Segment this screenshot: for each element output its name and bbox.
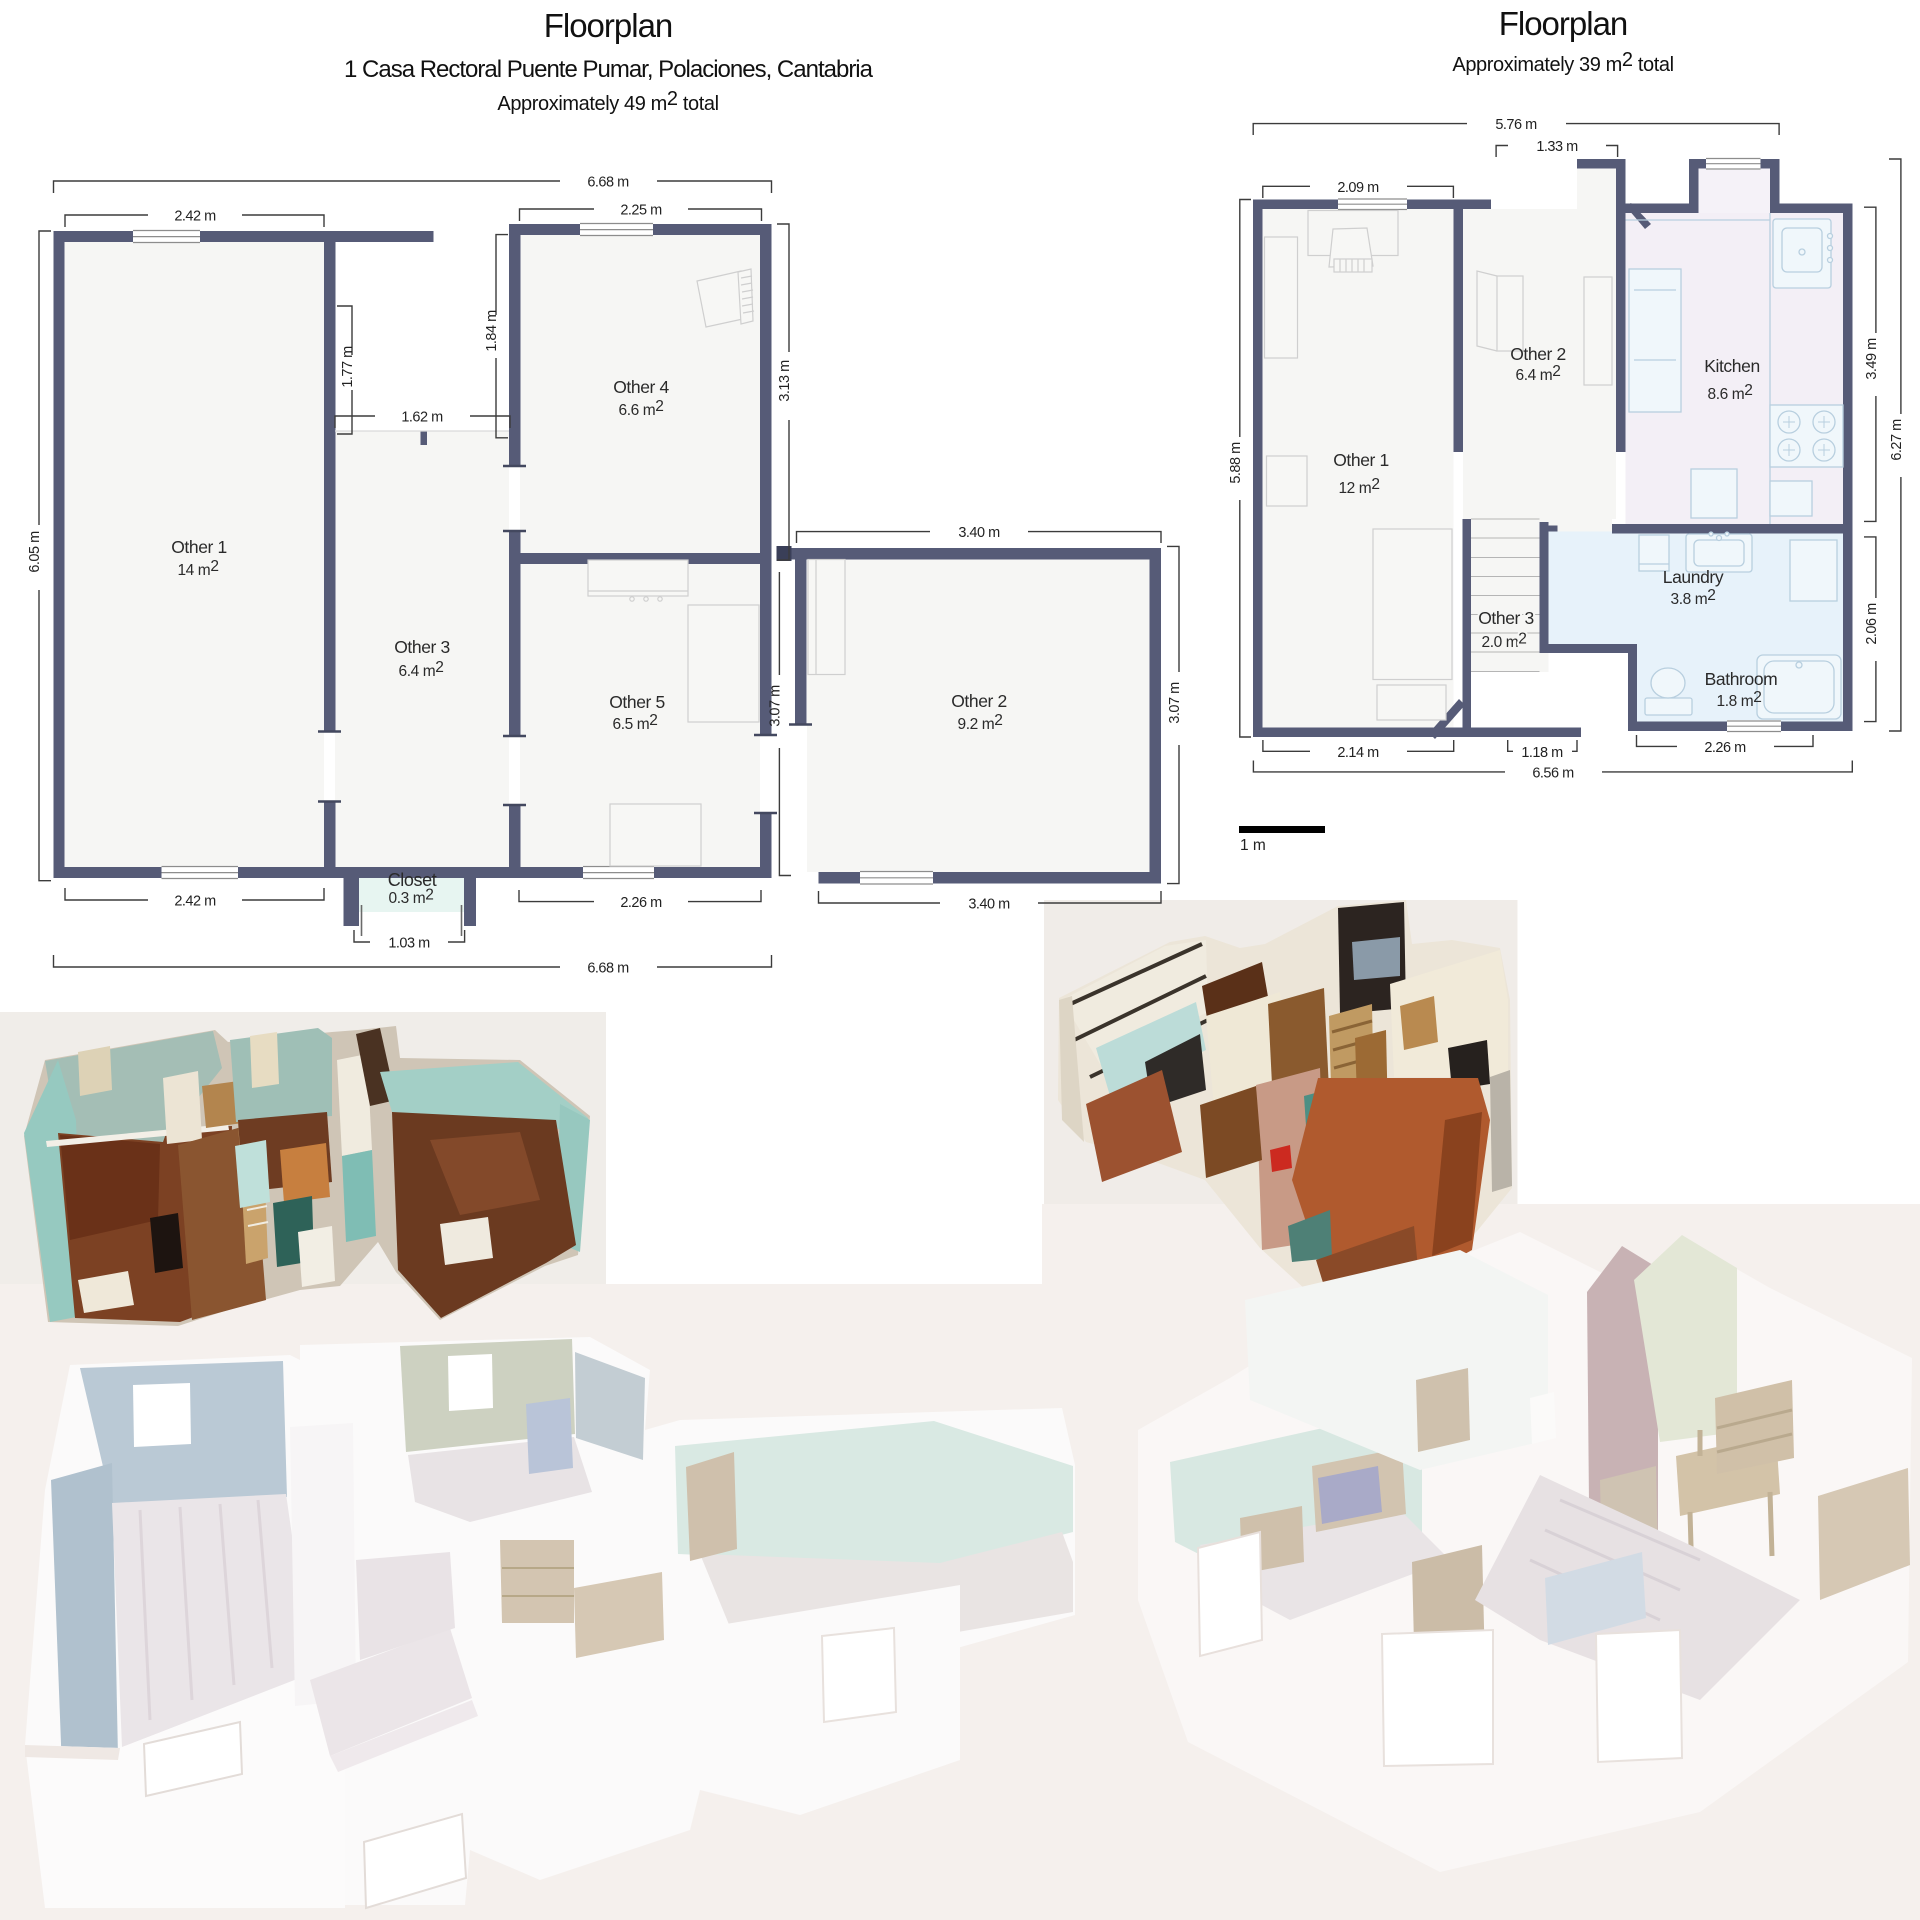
svg-text:2.14 m: 2.14 m [1337, 745, 1379, 761]
svg-text:3.40 m: 3.40 m [958, 525, 1000, 541]
svg-text:3.40 m: 3.40 m [968, 897, 1010, 913]
svg-text:Approximately 39 m2 total: Approximately 39 m2 total [1452, 49, 1673, 76]
svg-text:1.77 m: 1.77 m [340, 346, 356, 388]
svg-text:Other 3: Other 3 [394, 637, 450, 657]
svg-text:1.84 m: 1.84 m [484, 310, 500, 352]
svg-text:6.27 m: 6.27 m [1889, 419, 1905, 461]
svg-text:2.06 m: 2.06 m [1864, 603, 1880, 645]
svg-text:2.09 m: 2.09 m [1337, 180, 1379, 196]
svg-text:6.05 m: 6.05 m [27, 531, 43, 573]
svg-text:Other 2: Other 2 [951, 691, 1007, 711]
svg-text:5.88 m: 5.88 m [1228, 442, 1244, 484]
svg-text:6.68 m: 6.68 m [587, 961, 629, 977]
svg-text:1.03 m: 1.03 m [388, 936, 430, 952]
svg-text:5.76 m: 5.76 m [1495, 117, 1537, 133]
svg-text:1 Casa Rectoral Puente Pumar,: 1 Casa Rectoral Puente Pumar, Polaciones… [344, 56, 874, 83]
svg-text:3.13 m: 3.13 m [777, 360, 793, 402]
svg-text:Floorplan: Floorplan [544, 7, 673, 44]
svg-text:Laundry: Laundry [1663, 567, 1724, 587]
svg-text:Bathroom: Bathroom [1705, 669, 1778, 689]
svg-text:2.26 m: 2.26 m [1704, 740, 1746, 756]
svg-text:Other 1: Other 1 [1333, 450, 1389, 470]
svg-text:6.56 m: 6.56 m [1532, 765, 1574, 781]
svg-text:2.42 m: 2.42 m [174, 894, 216, 910]
svg-text:Floorplan: Floorplan [1499, 5, 1628, 42]
svg-text:Other 1: Other 1 [171, 537, 227, 557]
svg-text:Kitchen: Kitchen [1704, 356, 1760, 376]
svg-text:2.42 m: 2.42 m [174, 209, 216, 225]
svg-text:6.68 m: 6.68 m [587, 175, 629, 191]
svg-text:2.25 m: 2.25 m [620, 203, 662, 219]
svg-text:Approximately 49 m2 total: Approximately 49 m2 total [497, 88, 718, 115]
svg-text:Other 5: Other 5 [609, 692, 665, 712]
svg-text:1.18 m: 1.18 m [1521, 745, 1563, 761]
svg-text:2.26 m: 2.26 m [620, 895, 662, 911]
svg-text:Other 2: Other 2 [1510, 344, 1566, 364]
svg-text:1 m: 1 m [1240, 837, 1266, 854]
svg-text:Other 4: Other 4 [613, 377, 669, 397]
svg-text:1.62 m: 1.62 m [401, 410, 443, 426]
svg-text:Other 3: Other 3 [1478, 608, 1534, 628]
svg-text:3.49 m: 3.49 m [1864, 338, 1880, 380]
svg-text:3.07 m: 3.07 m [767, 685, 783, 727]
svg-text:3.07 m: 3.07 m [1167, 682, 1183, 724]
svg-text:1.33 m: 1.33 m [1536, 139, 1578, 155]
